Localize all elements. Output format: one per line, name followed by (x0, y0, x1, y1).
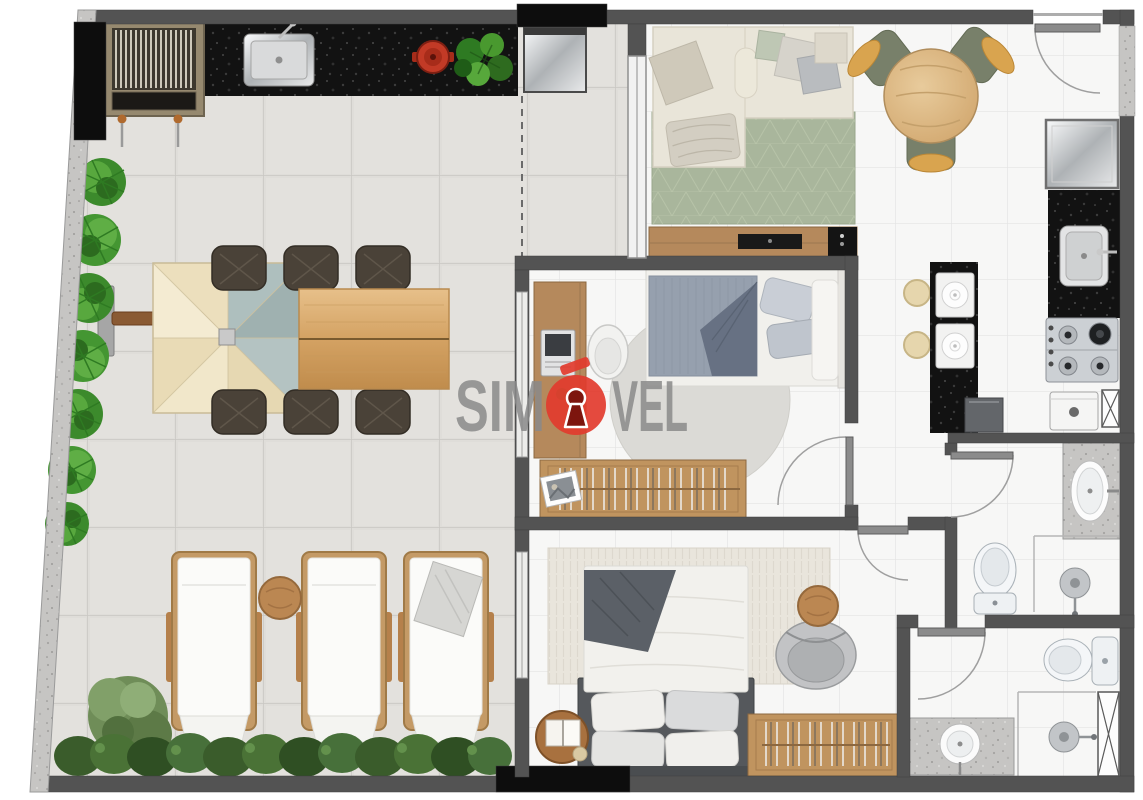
bedroom1-right-wall-upper (845, 256, 858, 423)
washing-machine (1050, 392, 1098, 430)
sun-lounger (398, 552, 494, 742)
bath1-toilet (974, 543, 1016, 614)
mid-wall-left (515, 517, 858, 530)
hall-bath1-wall-lower (945, 517, 957, 628)
bath2-toilet (1044, 637, 1118, 685)
watermark-text-sim: SIM (455, 367, 545, 447)
bedroom2-bath2-wall (897, 628, 910, 777)
living-room-glass-wall (628, 56, 646, 258)
open-wardrobe-2 (748, 714, 900, 776)
entry-pillar (1119, 26, 1135, 116)
watermark-text-vel: VEL (612, 367, 688, 447)
blanket (665, 113, 741, 167)
sun-lounger (296, 552, 392, 742)
glass-wall-stub (628, 24, 646, 56)
duct-shaft-bath2 (1098, 692, 1119, 776)
speaker-box (828, 227, 857, 257)
tv-console (649, 227, 857, 257)
refrigerator (1046, 120, 1118, 188)
mini-fridge (524, 28, 586, 92)
bath-divider-wall-right (985, 615, 1134, 628)
bath2-vanity (908, 718, 1014, 775)
armchair-side-table (798, 586, 838, 626)
place-setting (936, 273, 974, 317)
plank-dining-table (299, 289, 449, 389)
bedroom1-top-wall (515, 256, 858, 270)
lounger-side-table (259, 577, 301, 619)
corner-black-pillar (74, 22, 106, 140)
cooktop (1046, 318, 1118, 382)
sun-loungers (166, 552, 494, 742)
floor-plan-svg: SIM VEL (0, 0, 1143, 800)
watermark: SIM VEL (455, 356, 688, 447)
armchair (776, 621, 856, 689)
mid-wall-right (908, 517, 948, 530)
place-setting (936, 324, 974, 368)
bath1-vanity (1063, 443, 1120, 539)
kitchen-sink (1060, 226, 1117, 286)
right-wall (1120, 10, 1134, 792)
wicker-chairs-top (212, 246, 410, 290)
sun-lounger (166, 552, 262, 742)
under-counter-appliance (965, 398, 1003, 432)
round-dining-table (884, 49, 978, 143)
double-bed (578, 566, 754, 776)
floor-plan-image: SIM VEL (0, 0, 1143, 800)
bath-divider-wall-left (897, 615, 918, 628)
kitchen-bottom-wall (948, 433, 1134, 443)
bedroom-2-window (517, 552, 528, 678)
round-table-with-book (536, 711, 588, 763)
duct-shaft-kitchen (1102, 390, 1119, 427)
wicker-chairs-bottom (212, 390, 410, 434)
entry-lintel (1033, 13, 1103, 16)
structural-wall-top (517, 4, 607, 27)
